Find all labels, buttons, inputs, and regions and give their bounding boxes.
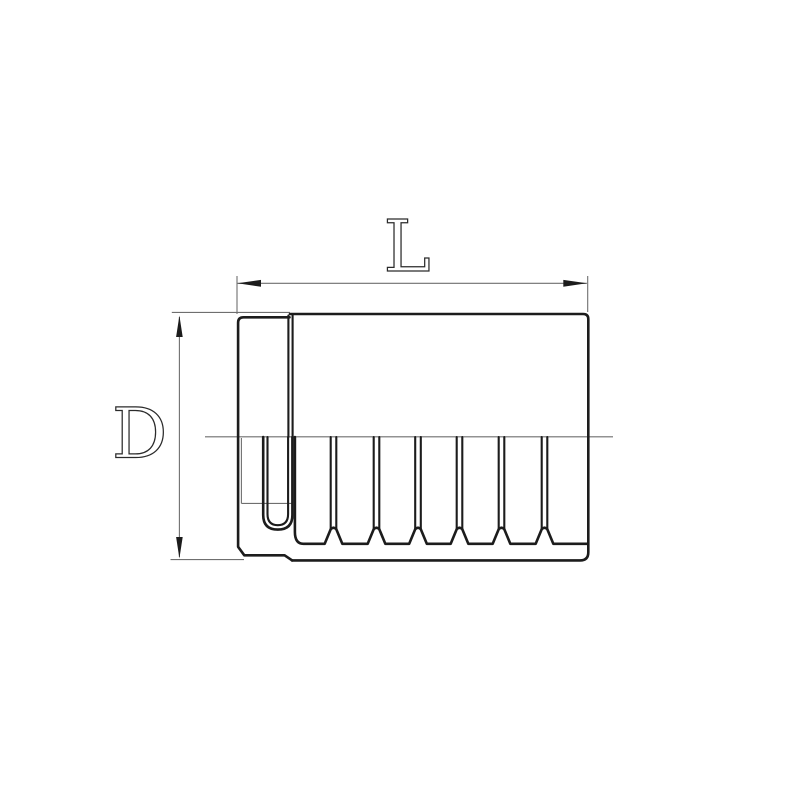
arrow-right-icon xyxy=(563,280,587,287)
serration-profile xyxy=(295,437,588,544)
serration-rib-walls xyxy=(331,437,548,529)
arrow-left-icon xyxy=(237,280,261,287)
drawing-canvas: L D xyxy=(0,0,800,800)
ferrule-technical-drawing: L D xyxy=(0,0,800,800)
cap-slot-inner xyxy=(268,437,289,525)
length-dimension-label: L xyxy=(384,205,431,288)
diameter-dimension-label: D xyxy=(112,395,167,475)
dimension-labels: L D xyxy=(112,205,431,475)
arrow-down-icon xyxy=(176,537,183,559)
arrow-up-icon xyxy=(176,316,183,338)
